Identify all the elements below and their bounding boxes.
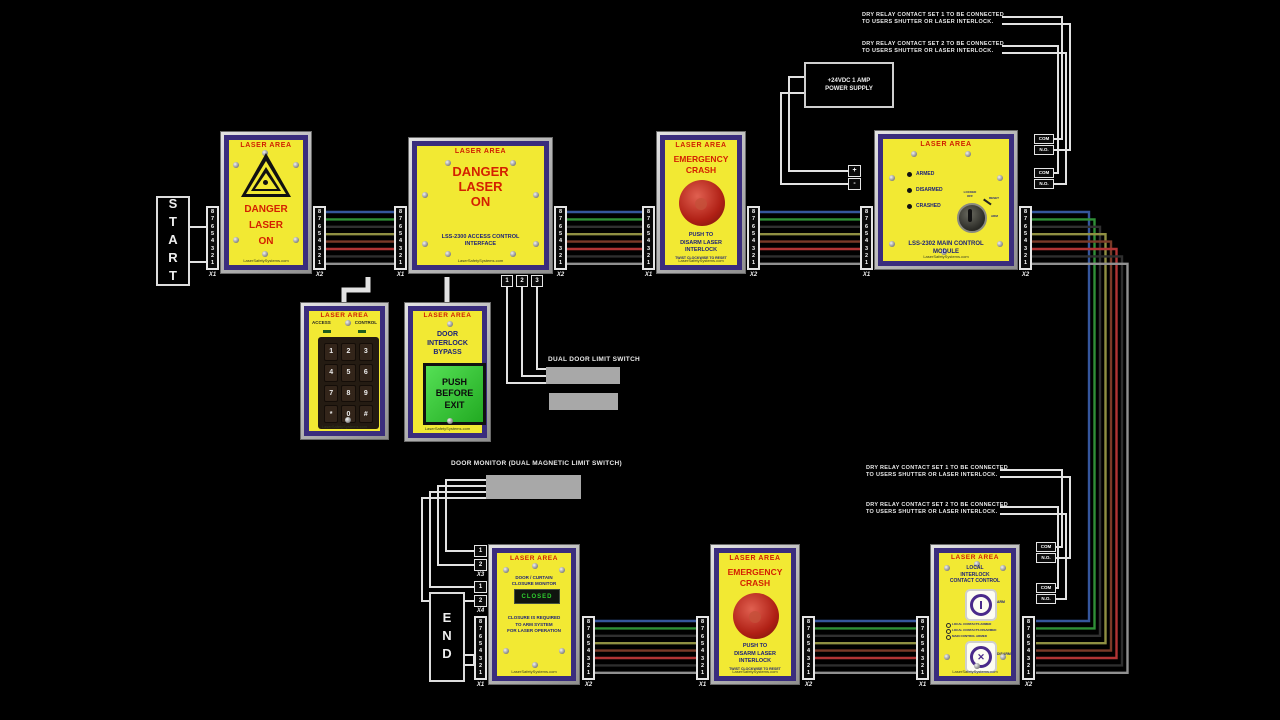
site-text: LaserSafetySystems.com bbox=[719, 669, 791, 674]
strip-label: X1 bbox=[206, 272, 219, 278]
panel-title: LASER AREA bbox=[939, 554, 1011, 561]
key-7: 7 bbox=[324, 385, 338, 403]
power-icon bbox=[970, 594, 992, 616]
key-8: 8 bbox=[341, 385, 355, 403]
screw-icon bbox=[911, 151, 917, 157]
wiring-diagram: START END +24VDC 1 AMP POWER SUPPLY DRY … bbox=[0, 0, 1280, 720]
strip-label: X1 bbox=[916, 682, 929, 688]
site-text: LaserSafetySystems.com bbox=[665, 258, 737, 263]
model-text: LSS-2300 ACCESS CONTROL INTERFACE bbox=[417, 234, 544, 248]
key-5: 5 bbox=[341, 364, 355, 382]
strip-label: X2 bbox=[554, 272, 567, 278]
panel-title: LASER AREA bbox=[665, 142, 737, 149]
limit-switch-box-2 bbox=[549, 393, 618, 410]
screw-icon bbox=[293, 162, 299, 168]
no-terminal: N.O. bbox=[1034, 145, 1054, 155]
dry-relay-note-2-bottom: DRY RELAY CONTACT SET 2 TO BE CONNECTED … bbox=[866, 502, 1008, 516]
keypad: 1 2 3 4 5 6 7 8 9 * 0 # bbox=[318, 337, 379, 429]
bypass-panel: LASER AREA DOOR INTERLOCK BYPASS PUSH BE… bbox=[404, 302, 491, 442]
keypad-panel: LASER AREA ACCESS CONTROL 1 2 3 4 5 6 7 … bbox=[300, 302, 389, 440]
keyswitch bbox=[957, 203, 987, 233]
danger-laser-on-text: DANGER LASER ON bbox=[417, 164, 544, 209]
disarmed-led-label: DISARMED bbox=[916, 187, 943, 193]
no-terminal: N.O. bbox=[1034, 179, 1054, 189]
panel-title: LASER AREA bbox=[413, 312, 482, 319]
door-monitor-label: DOOR MONITOR (DUAL MAGNETIC LIMIT SWITCH… bbox=[451, 460, 622, 467]
status-led-icon bbox=[323, 330, 331, 333]
dry-relay-note-2-top: DRY RELAY CONTACT SET 2 TO BE CONNECTED … bbox=[862, 41, 1004, 55]
terminal-strip-x1: 8 7 6 5 4 3 2 1 bbox=[206, 206, 219, 270]
strip-label: X1 bbox=[394, 272, 407, 278]
local-interlock-panel: LASER AREA LOCAL INTERLOCK CONTACT CONTR… bbox=[930, 544, 1020, 685]
status-line-2: LOCAL CONTACTS DISARMED bbox=[952, 629, 996, 633]
site-text: LaserSafetySystems.com bbox=[229, 258, 303, 263]
arm-button bbox=[965, 589, 997, 621]
key-reset-label: RESET bbox=[989, 197, 999, 201]
key-3: 3 bbox=[359, 343, 373, 361]
dual-door-limit-switch-label: DUAL DOOR LIMIT SWITCH bbox=[548, 356, 640, 363]
terminal-strip-x1: 8 7 6 5 4 3 2 1 bbox=[394, 206, 407, 270]
armed-led-icon bbox=[907, 172, 912, 177]
panel-title: LASER AREA bbox=[417, 148, 544, 155]
com-terminal: COM bbox=[1036, 583, 1056, 593]
armed-led-label: ARMED bbox=[916, 171, 934, 177]
access-label: ACCESS bbox=[312, 320, 331, 325]
terminal-strip-x1: 8 7 6 5 4 3 2 1 bbox=[642, 206, 655, 270]
screw-icon bbox=[447, 418, 453, 424]
screw-icon bbox=[559, 648, 565, 654]
screw-icon bbox=[889, 175, 895, 181]
x4-terminal-1: 1 bbox=[474, 581, 487, 593]
terminal-strip-x1: 8 7 6 5 4 3 2 1 bbox=[696, 616, 709, 680]
strip-label: X2 bbox=[1022, 682, 1035, 688]
emergency-crash-panel-top: LASER AREA EMERGENCY CRASH PUSH TO DISAR… bbox=[656, 131, 746, 274]
main-control-module-panel: LASER AREA ARMED DISARMED CRASHED LOCKED… bbox=[874, 130, 1018, 270]
closure-monitor-panel: LASER AREA DOOR / CURTAIN CLOSURE MONITO… bbox=[488, 544, 580, 685]
push-to-disarm-text: PUSH TO DISARM LASER INTERLOCK bbox=[665, 232, 737, 255]
x3-terminal-1: 1 bbox=[474, 545, 487, 557]
closure-monitor-subtitle: DOOR / CURTAIN CLOSURE MONITOR bbox=[497, 575, 571, 587]
terminal-3: 3 bbox=[531, 275, 543, 287]
screw-icon bbox=[965, 151, 971, 157]
terminal-strip-x1: 8 7 6 5 4 3 2 1 bbox=[860, 206, 873, 270]
dry-relay-note-1-top: DRY RELAY CONTACT SET 1 TO BE CONNECTED … bbox=[862, 12, 1004, 26]
key-icon bbox=[968, 209, 972, 222]
screw-icon bbox=[997, 175, 1003, 181]
screw-icon bbox=[503, 648, 509, 654]
dry-relay-note-1-bottom: DRY RELAY CONTACT SET 1 TO BE CONNECTED … bbox=[866, 465, 1008, 479]
strip-label: X1 bbox=[642, 272, 655, 278]
status-led-icon bbox=[946, 629, 951, 634]
laser-burst-icon bbox=[263, 180, 268, 185]
no-terminal: N.O. bbox=[1036, 553, 1056, 563]
panel-title: LASER AREA bbox=[309, 312, 380, 319]
push-before-exit-label: PUSH BEFORE EXIT bbox=[436, 377, 474, 412]
laser-on-sign-panel: LASER AREA DANGER LASER ON LaserSafetySy… bbox=[220, 131, 312, 274]
key-1: 1 bbox=[324, 343, 338, 361]
key-arm-label: ARM bbox=[991, 215, 998, 219]
screw-icon bbox=[345, 320, 351, 326]
screw-icon bbox=[559, 567, 565, 573]
screw-icon bbox=[345, 417, 351, 423]
screw-icon bbox=[447, 321, 453, 327]
strip-label: X1 bbox=[860, 272, 873, 278]
emergency-crash-text: EMERGENCY CRASH bbox=[665, 154, 737, 176]
panel-title: LASER AREA bbox=[229, 142, 303, 149]
screw-icon bbox=[532, 563, 538, 569]
screw-icon bbox=[233, 162, 239, 168]
terminal-strip-x2: 8 7 6 5 4 3 2 1 bbox=[747, 206, 760, 270]
com-terminal: COM bbox=[1034, 134, 1054, 144]
terminal-strip-x2: 8 7 6 5 4 3 2 1 bbox=[1022, 616, 1035, 680]
site-text: LaserSafetySystems.com bbox=[413, 426, 482, 431]
strip-label: X2 bbox=[313, 272, 326, 278]
strip-label: X1 bbox=[696, 682, 709, 688]
strip-label: X2 bbox=[802, 682, 815, 688]
closure-note: CLOSURE IS REQUIRED TO ARM SYSTEM FOR LA… bbox=[497, 615, 571, 635]
site-text: LaserSafetySystems.com bbox=[417, 258, 544, 263]
x4-label: X4 bbox=[474, 608, 487, 614]
status-led-icon bbox=[358, 330, 366, 333]
limit-switch-box-1 bbox=[546, 367, 620, 384]
key-star: * bbox=[324, 405, 338, 423]
terminal-strip-x2: 8 7 6 5 4 3 2 1 bbox=[582, 616, 595, 680]
key-off-label: OFF bbox=[955, 195, 985, 199]
crash-button-highlight bbox=[749, 611, 761, 623]
power-supply-box: +24VDC 1 AMP POWER SUPPLY bbox=[804, 62, 894, 108]
control-label: CONTROL bbox=[355, 320, 377, 325]
status-led-icon bbox=[946, 635, 951, 640]
start-label: START bbox=[156, 196, 190, 286]
panel-title: LASER AREA bbox=[497, 555, 571, 562]
emergency-crash-panel-bottom: LASER AREA EMERGENCY CRASH PUSH TO DISAR… bbox=[710, 544, 800, 685]
key-4: 4 bbox=[324, 364, 338, 382]
panel-title: LASER AREA bbox=[719, 555, 791, 562]
site-text: LaserSafetySystems.com bbox=[883, 254, 1009, 259]
power-supply-text: +24VDC 1 AMP POWER SUPPLY bbox=[825, 77, 873, 93]
status-line-3: MAIN CONTROL ARMED bbox=[952, 635, 987, 639]
site-text: LaserSafetySystems.com bbox=[309, 424, 380, 429]
screw-icon bbox=[944, 654, 950, 660]
x3-label: X3 bbox=[474, 572, 487, 578]
terminal-strip-x1: 8 7 6 5 4 3 2 1 bbox=[916, 616, 929, 680]
terminal-strip-x2: 8 7 6 5 4 3 2 1 bbox=[554, 206, 567, 270]
screw-icon bbox=[532, 662, 538, 668]
screw-icon bbox=[1000, 654, 1006, 660]
status-line-1: LOCAL CONTACTS ARMED bbox=[952, 623, 991, 627]
key-hash: # bbox=[359, 405, 373, 423]
strip-label: X1 bbox=[474, 682, 487, 688]
crashed-led-label: CRASHED bbox=[916, 203, 941, 209]
access-interface-panel: LASER AREA DANGER LASER ON LSS-2300 ACCE… bbox=[408, 137, 553, 274]
closure-display: CLOSED bbox=[514, 589, 560, 604]
com-terminal: COM bbox=[1036, 542, 1056, 552]
door-monitor-box bbox=[486, 475, 581, 499]
screw-icon bbox=[262, 251, 268, 257]
crash-button-highlight bbox=[695, 198, 707, 210]
terminal-strip-x2: 8 7 6 5 4 3 2 1 bbox=[313, 206, 326, 270]
emergency-crash-text: EMERGENCY CRASH bbox=[719, 567, 791, 589]
x3-terminal-2: 2 bbox=[474, 559, 487, 571]
x4-terminal-2: 2 bbox=[474, 595, 487, 607]
key-9: 9 bbox=[359, 385, 373, 403]
danger-laser-on-text: DANGER LASER ON bbox=[229, 202, 303, 250]
disarmed-led-icon bbox=[907, 188, 912, 193]
arm-button-label: ARM bbox=[997, 601, 1005, 605]
local-interlock-subtitle: LOCAL INTERLOCK CONTACT CONTROL bbox=[939, 565, 1011, 585]
screw-icon bbox=[510, 251, 516, 257]
site-text: LaserSafetySystems.com bbox=[497, 669, 571, 674]
terminal-strip-x2: 8 7 6 5 4 3 2 1 bbox=[1019, 206, 1032, 270]
status-led-icon bbox=[946, 623, 951, 628]
closure-display-value: CLOSED bbox=[521, 594, 552, 600]
terminal-1: 1 bbox=[501, 275, 513, 287]
panel-title: LASER AREA bbox=[883, 141, 1009, 148]
terminal-strip-x1: 8 7 6 5 4 3 2 1 bbox=[474, 616, 487, 680]
key-2: 2 bbox=[341, 343, 355, 361]
crashed-led-icon bbox=[907, 204, 912, 209]
supply-plus-terminal: + bbox=[848, 165, 861, 177]
door-interlock-bypass-text: DOOR INTERLOCK BYPASS bbox=[413, 330, 482, 357]
terminal-strip-x2: 8 7 6 5 4 3 2 1 bbox=[802, 616, 815, 680]
push-before-exit-button: PUSH BEFORE EXIT bbox=[423, 363, 486, 425]
com-terminal: COM bbox=[1034, 168, 1054, 178]
end-label: END bbox=[429, 592, 465, 682]
strip-label: X2 bbox=[582, 682, 595, 688]
site-text: LaserSafetySystems.com bbox=[939, 669, 1011, 674]
terminal-2: 2 bbox=[516, 275, 528, 287]
strip-label: X2 bbox=[747, 272, 760, 278]
screw-icon bbox=[503, 567, 509, 573]
no-terminal: N.O. bbox=[1036, 594, 1056, 604]
supply-minus-terminal: - bbox=[848, 178, 861, 190]
screw-icon bbox=[445, 251, 451, 257]
push-to-disarm-text: PUSH TO DISARM LASER INTERLOCK bbox=[719, 643, 791, 666]
strip-label: X2 bbox=[1019, 272, 1032, 278]
key-6: 6 bbox=[359, 364, 373, 382]
